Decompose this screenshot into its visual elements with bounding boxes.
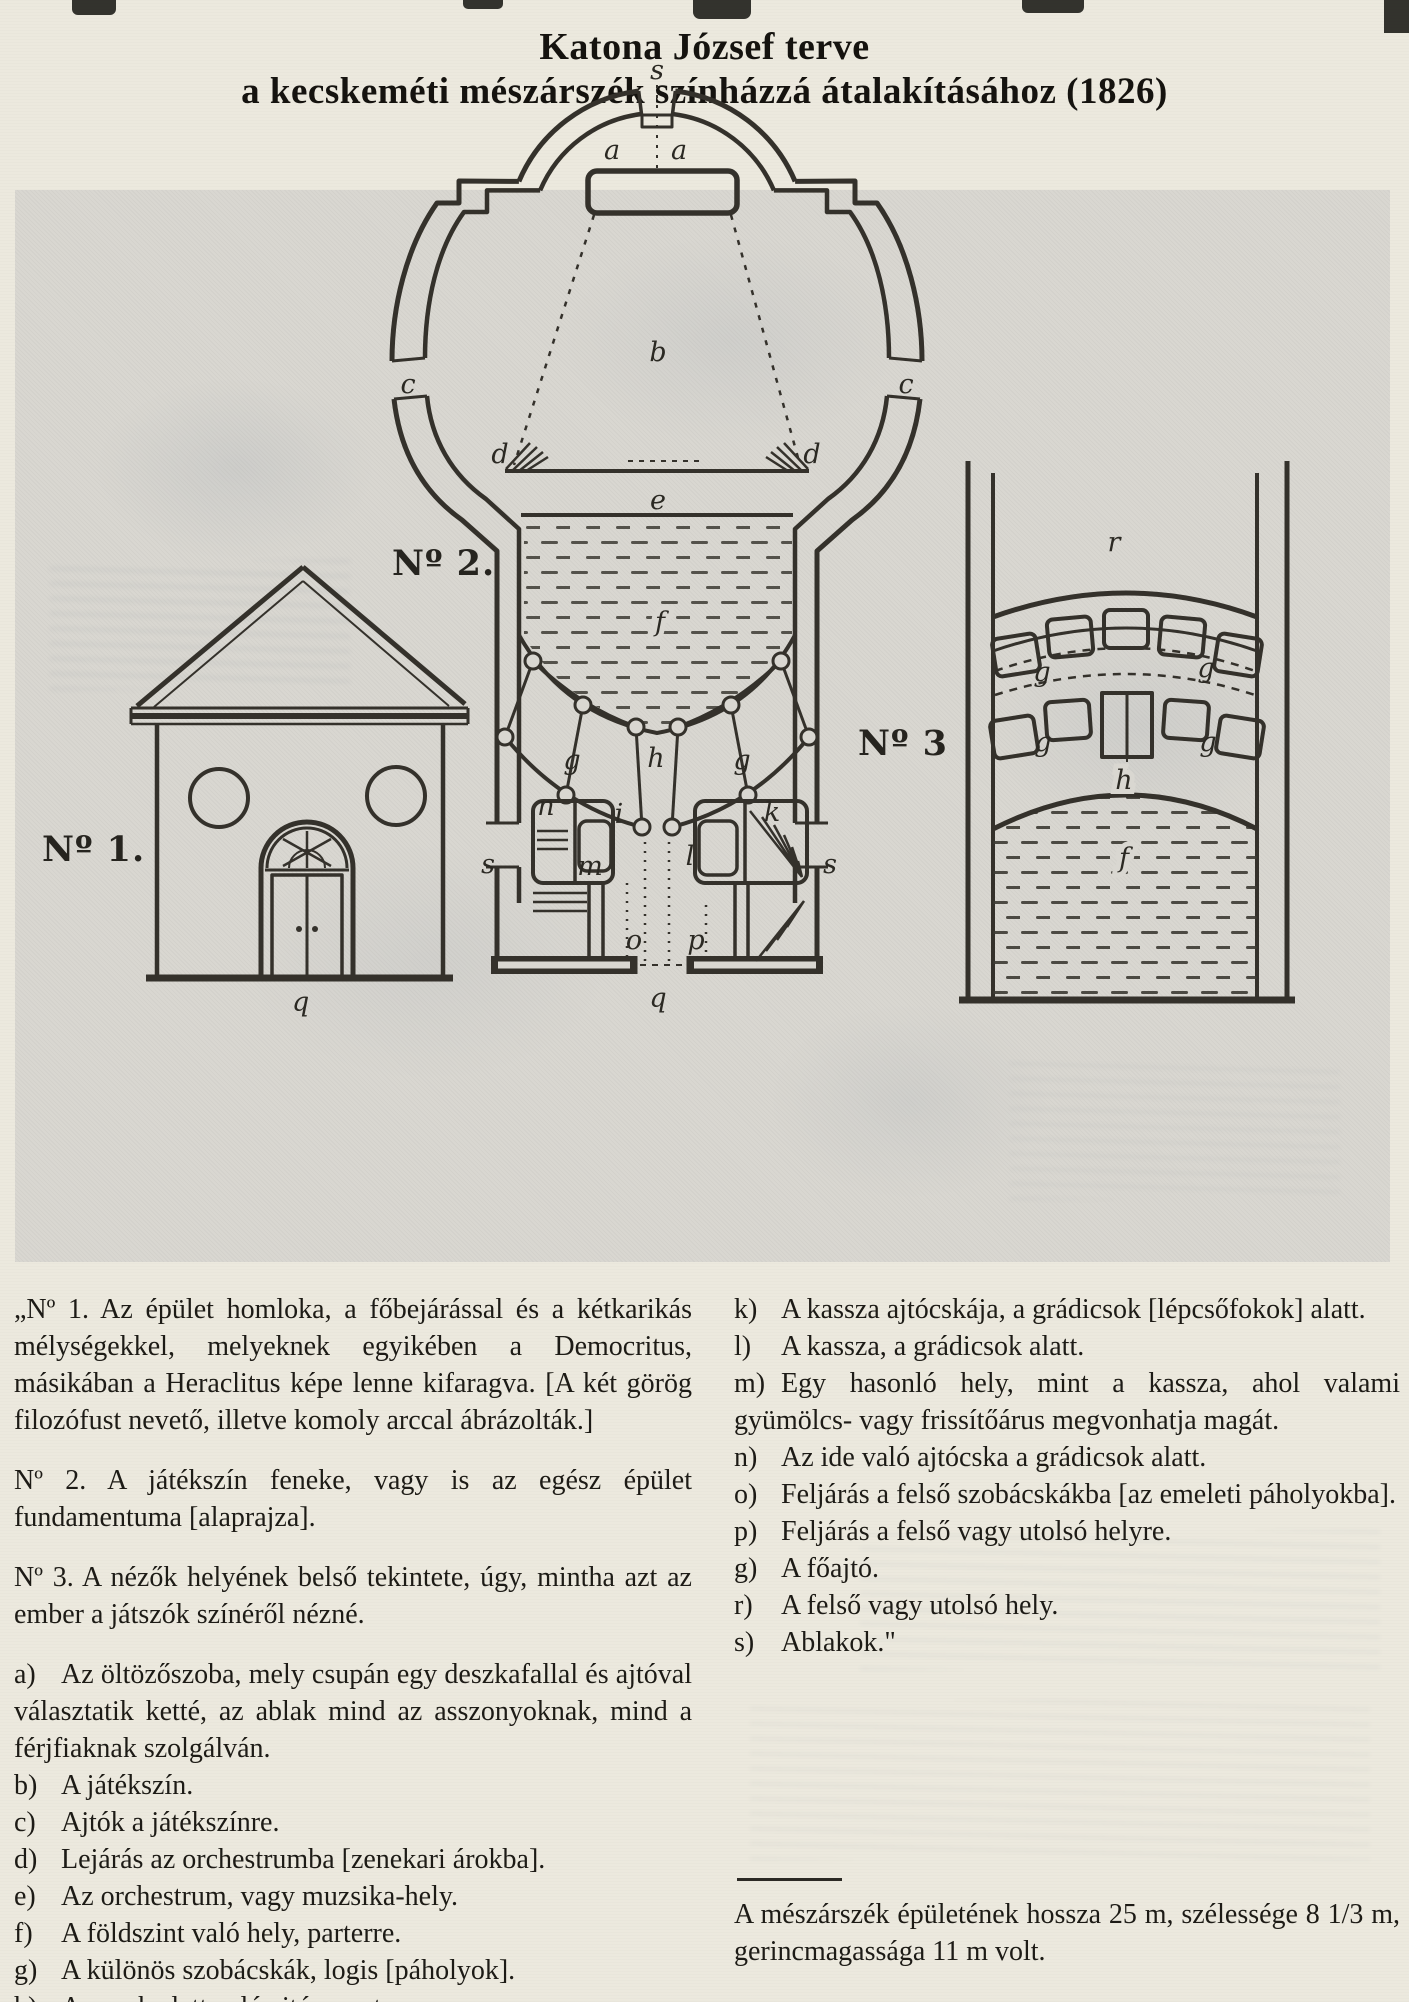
- mark-no3-h: h: [1115, 765, 1132, 796]
- legend-item-b: b)A játékszín.: [14, 1767, 692, 1804]
- item-key: d): [14, 1841, 61, 1878]
- mark-no2-s-door-left: s: [481, 849, 495, 880]
- item-key: p): [734, 1513, 781, 1550]
- mark-no2-g-left: g: [563, 745, 580, 776]
- item-text: Az öltözőszoba, mely csupán egy deszkafa…: [14, 1659, 692, 1764]
- legend-item-m: m)Egy hasonló hely, mint a kassza, ahol …: [734, 1365, 1400, 1439]
- legend-items-k-s: k)A kassza ajtócskája, a grádicsok [lépc…: [734, 1291, 1400, 1661]
- item-key: h): [14, 1989, 61, 2002]
- mark-no2-m: m: [577, 851, 603, 882]
- item-text: Az ezek alatt való ajtó a parterre.: [61, 1992, 432, 2002]
- mark-no2-c-left: c: [400, 369, 415, 400]
- mark-no3-g-upper-left: g: [1033, 657, 1050, 688]
- legend-item-s: s)Ablakok.": [734, 1624, 1400, 1661]
- legend-item-c: c)Ajtók a játékszínre.: [14, 1804, 692, 1841]
- plan-no1-drawing: Nº 1. q: [42, 567, 468, 1018]
- item-text: A játékszín.: [61, 1770, 193, 1801]
- legend-item-n: n)Az ide való ajtócska a grádicsok alatt…: [734, 1439, 1400, 1476]
- item-text: A kassza ajtócskája, a grádicsok [lépcső…: [781, 1294, 1366, 1325]
- legend-left-column: „Nº 1. Az épület homloka, a főbejárással…: [14, 1291, 692, 2002]
- item-key: s): [734, 1624, 781, 1661]
- item-text: Lejárás az orchestrumba [zenekari árokba…: [61, 1844, 545, 1875]
- legend-item-a: a)Az öltözőszoba, mely csupán egy deszka…: [14, 1656, 692, 1767]
- plan-no1-label: Nº 1.: [42, 829, 145, 870]
- legend-item-g2: g)A főajtó.: [734, 1550, 1400, 1587]
- plan-no3-drawing: Nº 3 r g g g g h f: [858, 461, 1295, 1000]
- mark-no2-n: n: [537, 791, 554, 822]
- mark-no1-q: q: [292, 987, 309, 1018]
- item-key: o): [734, 1476, 781, 1513]
- legend-item-h: h)Az ezek alatt való ajtó a parterre.: [14, 1989, 692, 2002]
- item-text: Feljárás a felső vagy utolsó helyre.: [781, 1516, 1171, 1547]
- item-key: k): [734, 1291, 781, 1328]
- legend-item-g: g)A különös szobácskák, logis [páholyok]…: [14, 1952, 692, 1989]
- item-key: a): [14, 1656, 61, 1693]
- item-text: Ajtók a játékszínre.: [61, 1807, 279, 1838]
- mark-no2-d-right: d: [803, 439, 820, 470]
- mark-no2-a-left: a: [604, 135, 620, 166]
- item-text: A főajtó.: [781, 1553, 879, 1584]
- scanned-page: Katona József terve a kecskeméti mészárs…: [0, 0, 1409, 2002]
- item-key: l): [734, 1328, 781, 1365]
- legend-item-e: e)Az orchestrum, vagy muzsika-hely.: [14, 1878, 692, 1915]
- legend-items-a-i: a)Az öltözőszoba, mely csupán egy deszka…: [14, 1656, 692, 2002]
- mark-no2-k: k: [764, 797, 780, 828]
- item-text: A különös szobácskák, logis [páholyok].: [61, 1955, 515, 1986]
- item-key: g): [734, 1550, 781, 1587]
- item-key: r): [734, 1587, 781, 1624]
- mark-no3-r: r: [1108, 527, 1123, 558]
- mark-no3-g-upper-right: g: [1197, 653, 1214, 684]
- closing-note: A mészárszék épületének hossza 25 m, szé…: [734, 1896, 1400, 1970]
- mark-no2-g-right: g: [733, 745, 750, 776]
- mark-no2-a-right: a: [671, 135, 687, 166]
- legend-paragraph-no1: „Nº 1. Az épület homloka, a főbejárással…: [14, 1291, 692, 1439]
- round-window-right: [367, 767, 425, 825]
- upper-boxes: [991, 610, 1262, 677]
- mark-no2-s-door-right: s: [823, 849, 837, 880]
- item-text: Feljárás a felső szobácskákba [az emelet…: [781, 1479, 1396, 1510]
- item-text: Az orchestrum, vagy muzsika-hely.: [61, 1881, 458, 1912]
- item-key: e): [14, 1878, 61, 1915]
- architectural-drawings: Nº 1. q: [0, 0, 1409, 1082]
- legend-item-r: r)A felső vagy utolsó hely.: [734, 1587, 1400, 1624]
- item-text: A kassza, a grádicsok alatt.: [781, 1331, 1084, 1362]
- legend-item-k: k)A kassza ajtócskája, a grádicsok [lépc…: [734, 1291, 1400, 1328]
- legend-paragraph-no3: Nº 3. A nézők helyének belső tekintete, …: [14, 1559, 692, 1633]
- mark-no2-o: o: [626, 925, 642, 956]
- item-text: Egy hasonló hely, mint a kassza, ahol va…: [734, 1368, 1400, 1436]
- item-key: f): [14, 1915, 61, 1952]
- plan-no3-label: Nº 3: [858, 723, 948, 764]
- mark-no2-h: h: [647, 743, 664, 774]
- legend-item-f: f)A földszint való hely, parterre.: [14, 1915, 692, 1952]
- item-text: A földszint való hely, parterre.: [61, 1918, 401, 1949]
- legend-item-l: l)A kassza, a grádicsok alatt.: [734, 1328, 1400, 1365]
- item-key: c): [14, 1804, 61, 1841]
- item-key: n): [734, 1439, 781, 1476]
- main-door: [261, 822, 353, 978]
- item-key: m): [734, 1365, 781, 1402]
- legend-item-o: o)Feljárás a felső szobácskákba [az emel…: [734, 1476, 1400, 1513]
- mark-no2-l: l: [686, 841, 695, 872]
- mark-no2-q: q: [649, 983, 666, 1014]
- plan-no2-label: Nº 2.: [392, 543, 495, 584]
- mark-no2-e: e: [650, 485, 666, 516]
- mark-no2-d-left: d: [491, 439, 508, 470]
- legend-item-d: d)Lejárás az orchestrumba [zenekari árok…: [14, 1841, 692, 1878]
- item-text: Ablakok.": [781, 1627, 896, 1658]
- mark-no2-c-right: c: [898, 369, 913, 400]
- footnote-rule: [737, 1878, 842, 1881]
- page-bleedthrough: [750, 1700, 1370, 1860]
- mark-no3-g-lower-right: g: [1199, 727, 1216, 758]
- mark-no2-i: i: [615, 799, 624, 830]
- item-key: g): [14, 1952, 61, 1989]
- plan-no2-drawing: Nº 2. s a a b c c d d e f g g h n i k m …: [392, 55, 922, 1014]
- mark-no3-g-lower-left: g: [1034, 727, 1051, 758]
- legend-paragraph-no2: Nº 2. A játékszín feneke, vagy is az egé…: [14, 1462, 692, 1536]
- mark-no2-b: b: [649, 337, 666, 368]
- item-key: b): [14, 1767, 61, 1804]
- item-text: A felső vagy utolsó hely.: [781, 1590, 1058, 1621]
- mark-no2-s-top: s: [650, 55, 664, 86]
- item-text: Az ide való ajtócska a grádicsok alatt.: [781, 1442, 1206, 1473]
- legend-item-p: p)Feljárás a felső vagy utolsó helyre.: [734, 1513, 1400, 1550]
- legend-right-column: k)A kassza ajtócskája, a grádicsok [lépc…: [734, 1291, 1400, 1661]
- round-window-left: [190, 769, 248, 827]
- mark-no2-p: p: [687, 925, 704, 956]
